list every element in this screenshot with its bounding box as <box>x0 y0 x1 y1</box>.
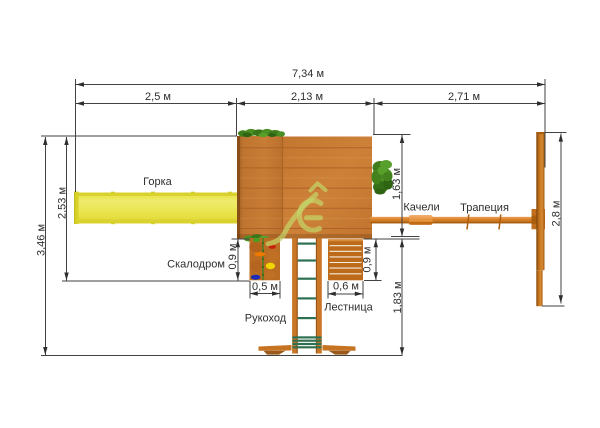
svg-text:0,9 м: 0,9 м <box>362 247 374 273</box>
svg-text:2,13 м: 2,13 м <box>291 91 323 103</box>
svg-text:0,5 м: 0,5 м <box>252 281 278 293</box>
svg-text:3,46 м: 3,46 м <box>36 224 48 256</box>
svg-text:Горка: Горка <box>143 176 173 188</box>
svg-text:Качели: Качели <box>403 202 439 214</box>
svg-text:1,83 м: 1,83 м <box>392 281 404 313</box>
svg-text:2,5 м: 2,5 м <box>145 91 171 103</box>
svg-text:2,8 м: 2,8 м <box>551 201 563 227</box>
svg-text:7,34 м: 7,34 м <box>292 68 324 80</box>
svg-text:1,63 м: 1,63 м <box>391 168 403 200</box>
svg-text:Скалодром: Скалодром <box>167 259 225 271</box>
svg-text:2,71 м: 2,71 м <box>448 91 480 103</box>
svg-text:Рукоход: Рукоход <box>245 313 287 325</box>
svg-text:Трапеция: Трапеция <box>460 202 509 214</box>
svg-text:0,9 м: 0,9 м <box>227 244 239 270</box>
svg-text:2,53 м: 2,53 м <box>57 187 69 219</box>
svg-text:0,6 м: 0,6 м <box>333 281 359 293</box>
svg-text:Лестница: Лестница <box>324 302 373 314</box>
